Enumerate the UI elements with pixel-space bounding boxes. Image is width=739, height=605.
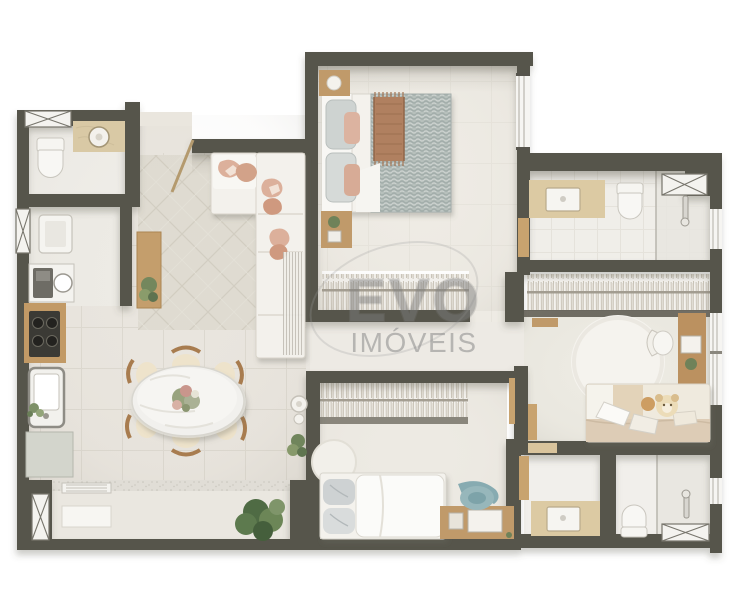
svg-text:EVO: EVO [346,267,482,334]
svg-text:IMÓVEIS: IMÓVEIS [350,327,477,358]
